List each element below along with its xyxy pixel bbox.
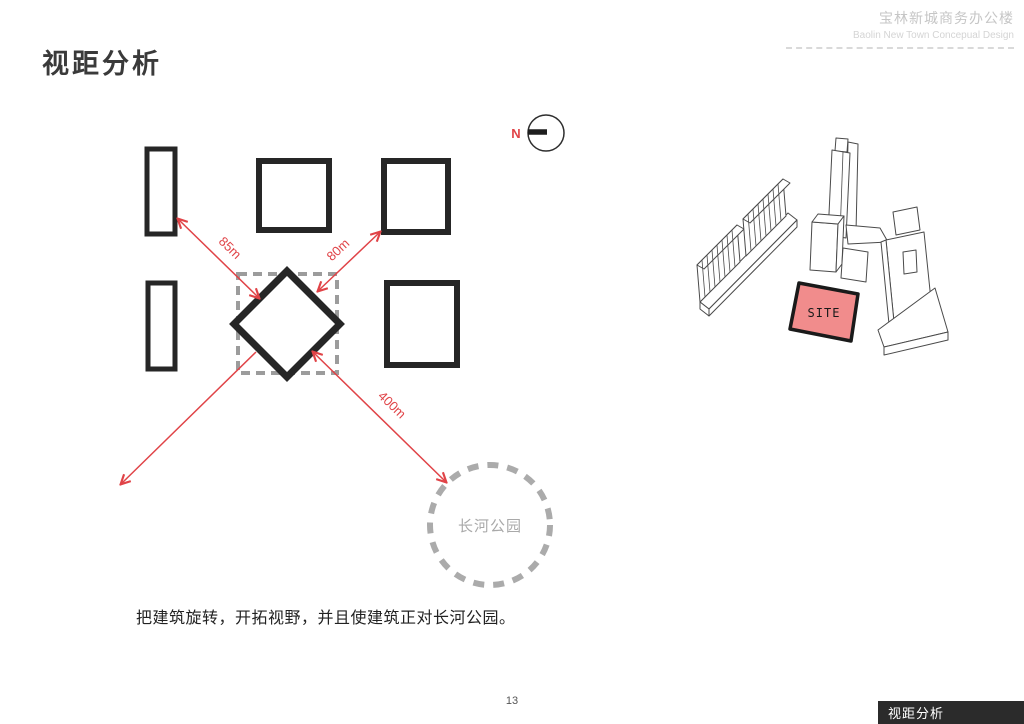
distance-label-85m: 85m <box>216 234 245 262</box>
north-label: N <box>511 126 520 141</box>
north-indicator: N <box>511 115 564 151</box>
arrow-80m <box>318 232 380 291</box>
rotated-site-building <box>234 271 340 377</box>
building-square-top-middle <box>259 161 329 230</box>
arrow-400m <box>313 352 446 482</box>
massing-sketch: SITE <box>697 138 948 355</box>
site-parcel-label: SITE <box>808 306 841 320</box>
arrow-85m <box>178 219 259 298</box>
caption-text: 把建筑旋转，开拓视野，并且使建筑正对长河公园。 <box>136 604 516 628</box>
distance-label-80m: 80m <box>324 236 353 264</box>
building-slab-top-left <box>147 149 175 234</box>
footer-section-tab: 视距分析 <box>878 701 1024 724</box>
building-square-top-right <box>384 161 448 232</box>
park-label: 长河公园 <box>458 518 522 535</box>
sketch-right-cluster <box>878 207 948 355</box>
slide-page: 宝林新城商务办公楼 Baolin New Town Concepual Desi… <box>0 0 1024 724</box>
page-number: 13 <box>462 695 562 707</box>
arrow-southwest <box>121 352 256 484</box>
building-square-mid-right <box>387 283 457 365</box>
building-slab-mid-left <box>148 283 175 369</box>
sketch-ribbed-slabs <box>697 179 797 316</box>
sketch-tower-cluster <box>810 138 888 282</box>
distance-label-400m: 400m <box>375 388 409 421</box>
